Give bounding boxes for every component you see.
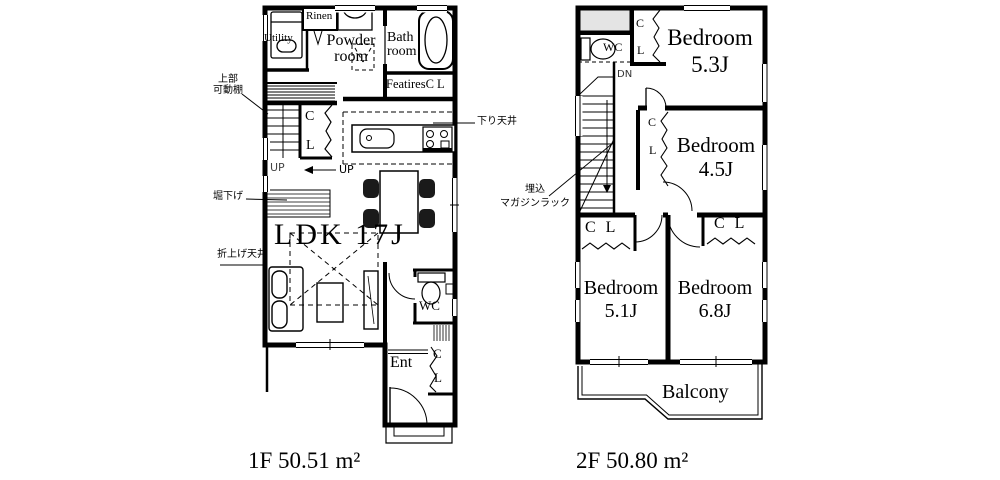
room-label-bath-line1: Bath: [387, 31, 413, 45]
window: [417, 4, 447, 13]
coffee-table-icon: [317, 283, 343, 322]
annotation-upper-shelf-line1: 上部: [218, 75, 238, 85]
bedroom45-name: Bedroom: [668, 135, 764, 156]
up-arrow: [304, 166, 336, 174]
roof-shade-area: [580, 10, 630, 31]
closet68-label: C L: [714, 216, 747, 232]
balcony-label: Balcony: [662, 382, 729, 402]
leader-dug-down: [246, 199, 287, 200]
up-arrow-label: UP: [339, 164, 354, 175]
stairs-up-label: UP: [270, 162, 285, 173]
chair: [419, 209, 435, 228]
closet68-bracket: [707, 238, 755, 244]
closet45-label-l: L: [649, 144, 656, 156]
closet-top-label-l: L: [637, 44, 644, 56]
bedroom51-size: 5.1J: [572, 301, 670, 321]
window: [680, 356, 752, 367]
entrance-door-arc: [390, 388, 427, 425]
vanity-sink-icon: [338, 10, 372, 30]
window: [335, 4, 375, 13]
closet-label-l-1f: L: [306, 139, 315, 153]
entrance-step-lines: [388, 350, 428, 354]
room-label-bath-line2: room: [387, 45, 417, 59]
ent-closet-label-c: C: [433, 347, 442, 360]
bedroom68-door-arc: [668, 215, 700, 247]
kitchen-counter: [352, 125, 455, 152]
stair-direction-arrow: [603, 100, 611, 193]
porch-outer: [386, 425, 452, 443]
bedroom68-size: 6.8J: [667, 301, 763, 321]
room-label-powder-line1: Powder: [314, 33, 388, 49]
closet51-bracket: [582, 243, 630, 249]
room-label-utility: Utility: [264, 33, 293, 44]
bedroom53-door-arc: [646, 88, 666, 108]
window: [684, 4, 730, 13]
dug-down-area: [267, 190, 330, 217]
window: [450, 178, 460, 232]
bathtub-icon: [419, 11, 453, 69]
room-label-wc-1f: WC: [419, 299, 440, 312]
shelf-stripes: [267, 86, 335, 101]
closet-label-c-1f: C: [305, 110, 314, 124]
bedroom51-door-arc: [635, 215, 662, 242]
room-label-rinen: Rinen: [306, 11, 332, 22]
room-label-wc-2f: WC: [603, 41, 622, 53]
window: [261, 138, 270, 160]
floorplan-drawing: [0, 0, 1000, 480]
chair: [419, 179, 435, 198]
annotation-raised-ceiling: 折上げ天井: [217, 250, 267, 260]
closet45-label-c: C: [648, 116, 656, 128]
stairs-dn-label: DN: [617, 70, 632, 80]
room-label-powder-line2: room: [314, 49, 388, 65]
chair: [363, 179, 379, 198]
bedroom68-name: Bedroom: [667, 278, 763, 298]
stairs-1f: [267, 103, 300, 158]
bedroom53-name: Bedroom: [658, 26, 762, 49]
bedroom51-name: Bedroom: [572, 278, 670, 298]
tv-board-icon: [364, 271, 378, 329]
annotation-magazine-line2: マガジンラック: [497, 199, 573, 209]
annotation-lowered-ceiling: 下り天井: [477, 117, 517, 127]
stairs-2f: [578, 62, 614, 215]
window: [590, 356, 648, 367]
closet51-label: C L: [585, 220, 618, 236]
wc-door-arc: [389, 273, 415, 299]
window: [261, 176, 270, 192]
annotation-upper-shelf-line2: 可動棚: [213, 86, 243, 96]
room-label-ent: Ent: [390, 355, 412, 371]
bedroom53-size: 5.3J: [658, 53, 762, 76]
closet-1f-bracket: [325, 105, 332, 157]
bedroom45-size: 4.5J: [668, 159, 764, 180]
annotation-dug-down: 堀下げ: [213, 192, 243, 202]
window: [451, 299, 460, 316]
window: [574, 96, 583, 136]
ent-closet-label-l: L: [434, 371, 442, 384]
dn-leader: [580, 77, 613, 94]
window: [296, 339, 364, 350]
floor1-area-caption: 1F 50.51 m²: [248, 449, 360, 472]
room-label-featires-cl: FeatiresC L: [386, 78, 445, 91]
room-label-ldk: LDK 17J: [274, 220, 406, 250]
bedroom45-door-arc: [663, 182, 692, 211]
shoe-shelf-stripes: [434, 325, 449, 341]
floorplan-canvas: Utility Rinen Powder room Bath room Feat…: [0, 0, 1000, 480]
closet45-bracket: [661, 112, 668, 186]
closet-top-label-c: C: [636, 17, 644, 29]
floor2-area-caption: 2F 50.80 m²: [576, 449, 688, 472]
annotation-magazine-line1: 埋込: [506, 185, 564, 195]
